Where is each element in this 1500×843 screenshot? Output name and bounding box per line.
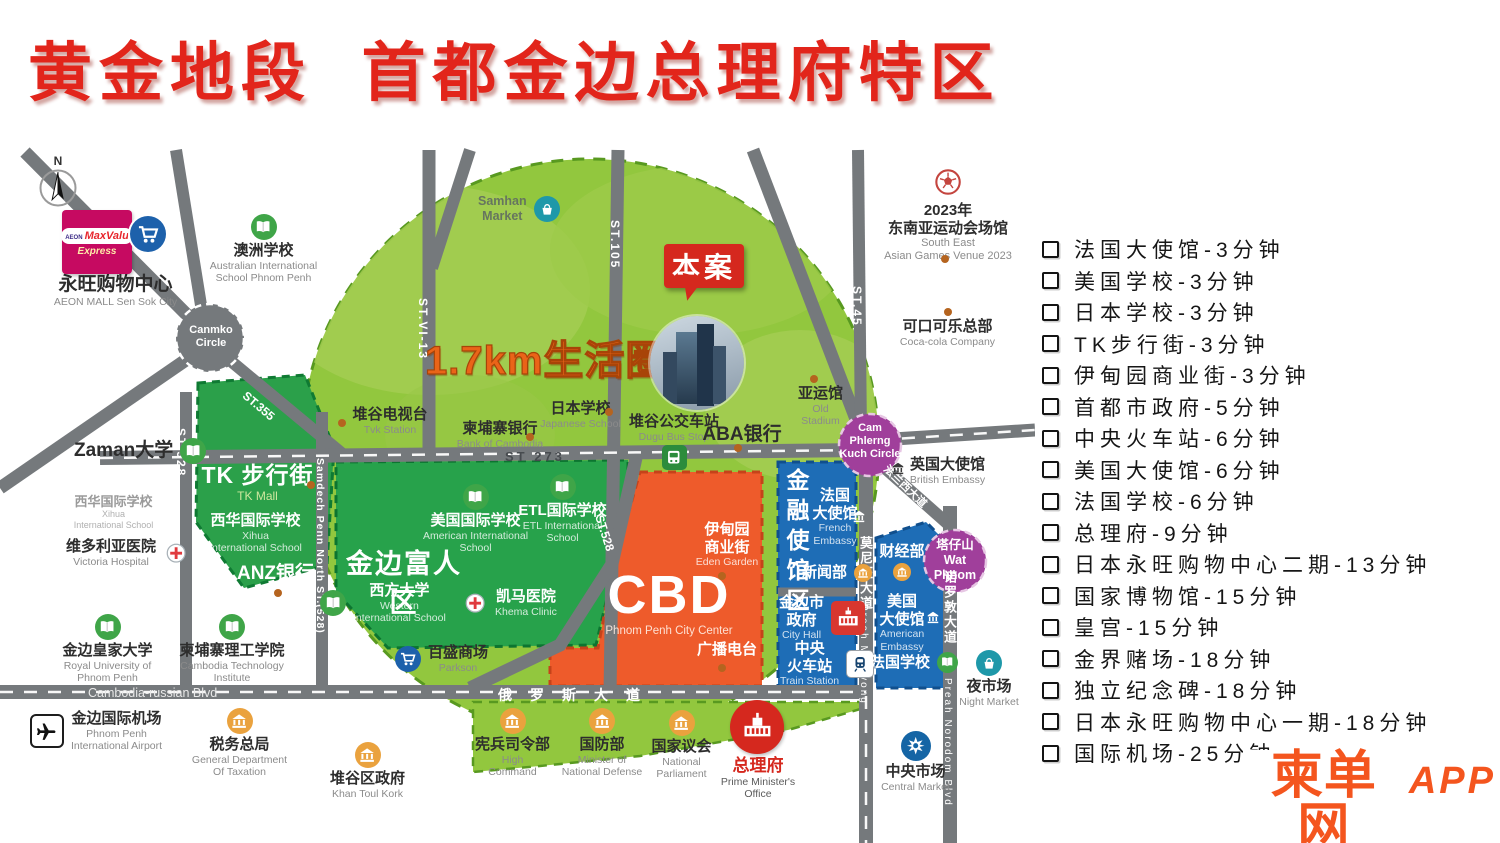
wat-phnom-circle-label: 塔仔山 Wat Phnom bbox=[926, 538, 984, 583]
poi-label-en: Phnom Penh bbox=[77, 672, 138, 684]
poi-etl-school: ETL国际学校ETL InternationalSchool bbox=[500, 472, 625, 544]
poi-label-zh: 宪兵司令部 bbox=[475, 736, 550, 754]
poi-label-en: AEON MALL Sen Sok City bbox=[54, 296, 177, 308]
poi-label-zh: 法国 bbox=[820, 487, 850, 505]
checkbox-icon bbox=[1042, 493, 1059, 510]
poi-label-en: Phnom Penh bbox=[86, 728, 147, 740]
cross-icon bbox=[462, 590, 488, 616]
poi-coca-cola-company: 可口可乐总部Coca-cola Company bbox=[880, 318, 1015, 348]
poi-marker-dot bbox=[944, 308, 952, 316]
poi-label-zh: 美国 bbox=[887, 593, 917, 611]
brand-app-suffix: APP bbox=[1409, 760, 1496, 803]
road-label-st45: ST.45 bbox=[850, 286, 864, 327]
poi-royal-university: 金边皇家大学Royal University ofPhnom Penh bbox=[50, 612, 165, 684]
checkbox-icon bbox=[1042, 461, 1059, 478]
poi-text: 中央火车站Train Station bbox=[780, 640, 839, 688]
aeon-brand-top: AEON bbox=[65, 235, 82, 241]
poi-text: 伊甸园商业街Eden Garden bbox=[696, 521, 758, 569]
poi-label-zh: 永旺购物中心 bbox=[58, 274, 172, 296]
poi-text: 广播电台 bbox=[697, 641, 757, 659]
cross-icon bbox=[163, 540, 189, 566]
poi-marker-dot bbox=[734, 444, 742, 452]
distance-list-item: 美国大使馆-6分钟 bbox=[1042, 459, 1431, 481]
poi-text: 法国学校 bbox=[870, 654, 930, 672]
distance-text: 美国大使馆-6分钟 bbox=[1074, 455, 1285, 485]
poi-label-zh: Zaman大学 bbox=[74, 440, 173, 462]
poi-text: 维多利亚医院Victoria Hospital bbox=[66, 538, 156, 568]
poi-high-command: 宪兵司令部HighCommand bbox=[465, 706, 560, 778]
poi-label-en: Victoria Hospital bbox=[73, 556, 149, 568]
poi-text: 国防部Minister ofNational Defense bbox=[562, 736, 643, 778]
poi-taxation-department: 税务总局General DepartmentOf Taxation bbox=[172, 706, 307, 778]
poi-text: 税务总局General DepartmentOf Taxation bbox=[192, 736, 287, 778]
distance-text: 日本学校-3分钟 bbox=[1074, 297, 1259, 327]
poi-label-zh: 法国学校 bbox=[870, 654, 930, 672]
distance-list-item: 日本学校-3分钟 bbox=[1042, 301, 1431, 323]
bank-icon bbox=[893, 563, 911, 581]
aeon-brand-sub: Express bbox=[78, 246, 117, 257]
checkbox-icon bbox=[1042, 650, 1059, 667]
distance-list-item: 皇宫-15分钟 bbox=[1042, 616, 1431, 638]
poi-marker-dot bbox=[605, 408, 613, 416]
aeon-brand-main: MaxValu bbox=[85, 230, 129, 242]
poi-text: SamhanMarket bbox=[478, 194, 527, 224]
poi-label-zh: 柬埔寨理工学院 bbox=[179, 642, 284, 660]
poi-label-en: Eden Garden bbox=[696, 556, 758, 568]
bank-icon bbox=[355, 742, 381, 768]
poi-label-zh: 东南亚运动会场馆 bbox=[888, 220, 1008, 238]
poi-label-en: Stadium bbox=[801, 415, 840, 427]
poi-label-zh: 维多利亚医院 bbox=[66, 538, 156, 556]
poi-label-zh: 夜市场 bbox=[966, 678, 1011, 696]
soccer-icon bbox=[930, 164, 966, 200]
poi-label-zh: 堆谷电视台 bbox=[352, 406, 427, 424]
poi-sea-games-venue: 2023年东南亚运动会场馆South EastAsian Games Venue… bbox=[862, 162, 1034, 263]
distance-list-item: 中央火车站-6分钟 bbox=[1042, 427, 1431, 449]
poi-victoria-hospital: 维多利亚医院Victoria Hospital bbox=[66, 538, 191, 568]
distance-list-item: 总理府-9分钟 bbox=[1042, 522, 1431, 544]
poi-xihua-school: 西华国际学校XihuaInternational School bbox=[56, 494, 171, 531]
poi-label-en: Xihua bbox=[242, 530, 269, 542]
page-title: 黄金地段 首都金边总理府特区 bbox=[28, 22, 1001, 114]
poi-marker-dot bbox=[274, 589, 282, 597]
poi-label-en: National bbox=[662, 756, 701, 768]
checkbox-icon bbox=[1042, 745, 1059, 762]
basket-icon bbox=[534, 196, 560, 222]
distance-text: 总理府-9分钟 bbox=[1074, 518, 1233, 548]
burst-icon bbox=[901, 731, 931, 761]
poi-label-en: Samhan bbox=[478, 194, 527, 209]
poi-aeon-mall: 永旺购物中心AEON MALL Sen Sok City bbox=[48, 274, 183, 309]
checkbox-icon bbox=[1042, 241, 1059, 258]
road-label-st273: ST 273 bbox=[505, 449, 565, 464]
poi-label-en: International School bbox=[209, 542, 302, 554]
poi-tvk-station: 堆谷电视台Tvk Station bbox=[340, 406, 440, 436]
compass-n-label: N bbox=[54, 154, 63, 168]
poi-british-embassy: 英国大使馆British Embassy bbox=[905, 456, 990, 486]
distance-text: 法国大使馆-3分钟 bbox=[1074, 234, 1285, 264]
poi-ministry-of-information: 新闻部 bbox=[802, 562, 874, 584]
poi-label-zh: 凯马医院 bbox=[496, 588, 556, 606]
poi-label-zh: ANZ银行 bbox=[237, 563, 314, 585]
distance-list-item: 日本永旺购物中心一期-18分钟 bbox=[1042, 711, 1431, 733]
poi-label-zh: 总理府 bbox=[732, 756, 783, 776]
book-icon bbox=[95, 614, 121, 640]
poi-label-zh: ABA银行 bbox=[702, 424, 781, 446]
poi-text: 总理府Prime Minister'sOffice bbox=[721, 756, 795, 801]
poi-label-en: Tvk Station bbox=[364, 424, 417, 436]
poi-text: 西方大学WesternInternational School bbox=[353, 582, 446, 624]
poi-australian-school: 澳洲学校Australian InternationalSchool Phnom… bbox=[196, 212, 331, 284]
poi-label-en: Coca-cola Company bbox=[900, 336, 995, 348]
bank-icon bbox=[227, 708, 253, 734]
checkbox-icon bbox=[1042, 335, 1059, 352]
poi-label-en: Dugu Bus Stop bbox=[639, 431, 710, 443]
distance-list-item: 法国学校-6分钟 bbox=[1042, 490, 1431, 512]
poi-text: 柬埔寨理工学院Cambodia TechnologyInstitute bbox=[179, 642, 284, 684]
poi-label-zh: 税务总局 bbox=[209, 736, 269, 754]
distance-list-item: 首都市政府-5分钟 bbox=[1042, 396, 1431, 418]
poi-samhan-market: SamhanMarket bbox=[478, 194, 562, 224]
distance-text: 日本永旺购物中心二期-13分钟 bbox=[1074, 549, 1431, 579]
poi-label-en: ETL International bbox=[523, 520, 603, 532]
jiandanwang-logo[interactable]: 柬单网 APP 在柬华人都在用 bbox=[1243, 750, 1500, 843]
distance-text: 国家博物馆-15分钟 bbox=[1074, 581, 1301, 611]
poi-marker-dot bbox=[810, 375, 818, 383]
poi-text: Zaman大学 bbox=[74, 440, 173, 462]
poi-label-zh: 政府 bbox=[787, 612, 817, 630]
poi-text: 金边国际机场Phnom PenhInternational Airport bbox=[71, 710, 162, 752]
poi-text: 凯马医院Khema Clinic bbox=[495, 588, 557, 618]
poi-label-en: Of Taxation bbox=[213, 766, 266, 778]
poi-french-school: 法国学校 bbox=[870, 650, 960, 675]
wat-phnom-en: Wat Phnom bbox=[926, 553, 984, 583]
distance-text: 金界赌场-18分钟 bbox=[1074, 644, 1275, 674]
embassy-icon bbox=[926, 610, 940, 624]
poi-label-zh: 日本学校 bbox=[550, 400, 610, 418]
poi-label-en: Night Market bbox=[959, 696, 1019, 708]
cam-phlerng-circle-label: Cam Phlerng Kuch Circle bbox=[838, 422, 902, 462]
poi-label-en: Market bbox=[482, 209, 522, 224]
distance-text: 法国学校-6分钟 bbox=[1074, 486, 1259, 516]
poi-label-en: General Department bbox=[192, 754, 287, 766]
poi-label-zh: 火车站 bbox=[787, 658, 832, 676]
poi-label-zh: 大使馆 bbox=[812, 505, 857, 523]
distance-list-item: 伊甸园商业街-3分钟 bbox=[1042, 364, 1431, 386]
poi-label-zh: 广播电台 bbox=[697, 641, 757, 659]
poi-label-en: International Airport bbox=[71, 740, 162, 752]
poi-anz-bank: ANZ银行 bbox=[228, 563, 323, 585]
book-icon bbox=[463, 484, 489, 510]
road-label-st105: ST.105 bbox=[608, 220, 622, 269]
poi-text: 堆谷电视台Tvk Station bbox=[352, 406, 427, 436]
poi-label-en: National Defense bbox=[562, 766, 643, 778]
project-location-badge[interactable]: 本案 bbox=[664, 244, 744, 288]
poi-label-en: Royal University of bbox=[64, 660, 152, 672]
book-icon bbox=[550, 474, 576, 500]
checkbox-icon bbox=[1042, 272, 1059, 289]
distance-list-item: TK步行街-3分钟 bbox=[1042, 333, 1431, 355]
cbd-subtitle: Phnom Penh City Center bbox=[598, 625, 740, 637]
poi-text: 百盛商场Parkson bbox=[428, 644, 488, 674]
checkbox-icon bbox=[1042, 398, 1059, 415]
poi-radio-station: 广播电台 bbox=[682, 641, 772, 659]
distance-text: 中央火车站-6分钟 bbox=[1074, 423, 1285, 453]
poi-text: 可口可乐总部Coca-cola Company bbox=[900, 318, 995, 348]
distance-list: 法国大使馆-3分钟美国学校-3分钟日本学校-3分钟TK步行街-3分钟伊甸园商业街… bbox=[1042, 238, 1431, 764]
poi-text: ABA银行 bbox=[702, 424, 781, 446]
poi-text: 堆谷区政府Khan Toul Kork bbox=[330, 770, 405, 800]
poi-label-en: Central Market bbox=[881, 781, 950, 793]
govred-icon bbox=[831, 601, 865, 635]
poi-label-zh: 国防部 bbox=[579, 736, 624, 754]
distance-text: 独立纪念碑-18分钟 bbox=[1074, 675, 1301, 705]
poi-text: ETL国际学校ETL InternationalSchool bbox=[518, 502, 606, 544]
maxvalu-card: AEON MaxValu Express bbox=[62, 210, 132, 274]
poi-parkson-mall: 百盛商场Parkson bbox=[393, 644, 488, 674]
distance-text: 日本永旺购物中心一期-18分钟 bbox=[1074, 707, 1431, 737]
poi-text: 澳洲学校Australian InternationalSchool Phnom… bbox=[210, 242, 317, 284]
poi-label-zh: 西方大学 bbox=[369, 582, 429, 600]
poi-label-zh: 西华国际学校 bbox=[74, 494, 152, 509]
poi-label-zh: 国家议会 bbox=[651, 738, 711, 756]
poi-western-university: 西方大学WesternInternational School bbox=[318, 582, 446, 624]
poi-text: 法国大使馆FrenchEmbassy bbox=[812, 487, 857, 547]
distance-text: 皇宫-15分钟 bbox=[1074, 612, 1223, 642]
poi-zaman-university: Zaman大学 bbox=[74, 436, 208, 466]
poi-marker-dot bbox=[526, 433, 534, 441]
poi-label-zh: 中央市场 bbox=[885, 763, 945, 781]
poi-label-en: Khema Clinic bbox=[495, 606, 557, 618]
book-icon bbox=[251, 214, 277, 240]
poi-label-zh: 亚运馆 bbox=[798, 385, 843, 403]
poi-text: 国家议会NationalParliament bbox=[651, 738, 711, 780]
poi-label-en: Khan Toul Kork bbox=[332, 788, 403, 800]
poi-text: 金边皇家大学Royal University ofPhnom Penh bbox=[62, 642, 152, 684]
plane-icon bbox=[30, 714, 64, 748]
checkbox-icon bbox=[1042, 524, 1059, 541]
poi-text: TK 步行街TK Mall bbox=[201, 462, 313, 503]
poi-khan-toul-kork: 堆谷区政府Khan Toul Kork bbox=[305, 740, 430, 800]
canmko-circle-label: Canmko Circle bbox=[180, 324, 242, 350]
road-label-cambodia-russian: Cambodia-russian Blvd bbox=[88, 686, 217, 700]
poi-label-en: TK Mall bbox=[237, 489, 278, 503]
poi-tk-mall: TK 步行街TK Mall bbox=[200, 462, 315, 503]
distance-list-item: 日本永旺购物中心二期-13分钟 bbox=[1042, 553, 1431, 575]
poi-label-zh: 堆谷区政府 bbox=[330, 770, 405, 788]
poi-text: 中央市场Central Market bbox=[881, 763, 950, 793]
poi-label-zh: ETL国际学校 bbox=[518, 502, 606, 520]
embassy-icon bbox=[891, 461, 905, 475]
poi-label-zh: 2023年 bbox=[924, 202, 972, 220]
poi-label-en: International School bbox=[74, 520, 154, 531]
shopping-cart-icon bbox=[130, 216, 166, 252]
brand-name: 柬单网 bbox=[1247, 750, 1401, 843]
poi-city-hall: 金边市政府City Hall bbox=[779, 594, 867, 642]
poi-night-market: 夜市场Night Market bbox=[954, 648, 1024, 708]
checkbox-icon bbox=[1042, 556, 1059, 573]
poi-label-zh: 英国大使馆 bbox=[910, 456, 985, 474]
bank-icon bbox=[669, 710, 695, 736]
distance-text: 伊甸园商业街-3分钟 bbox=[1074, 360, 1311, 390]
embassy-icon bbox=[852, 509, 866, 523]
poi-label-en: Train Station bbox=[780, 675, 839, 687]
poi-label-en: South East bbox=[921, 237, 975, 250]
cart-icon bbox=[395, 646, 421, 672]
checkbox-icon bbox=[1042, 619, 1059, 636]
checkbox-icon bbox=[1042, 682, 1059, 699]
bank-icon bbox=[589, 708, 615, 734]
poi-label-en: High bbox=[502, 754, 524, 766]
poi-label-en: School bbox=[546, 532, 578, 544]
checkbox-icon bbox=[1042, 430, 1059, 447]
distance-list-item: 金界赌场-18分钟 bbox=[1042, 648, 1431, 670]
poi-label-zh: 商业街 bbox=[704, 539, 749, 557]
poi-international-airport: 金边国际机场Phnom PenhInternational Airport bbox=[28, 710, 162, 752]
poi-marker-dot bbox=[307, 481, 315, 489]
life-circle-label: 1.7km生活圈 bbox=[425, 328, 666, 386]
poi-label-en: British Embassy bbox=[910, 474, 985, 486]
poi-label-en: Xihua bbox=[102, 509, 125, 520]
poi-prime-minister-office: 总理府Prime Minister'sOffice bbox=[712, 756, 804, 801]
poi-text: 永旺购物中心AEON MALL Sen Sok City bbox=[54, 274, 177, 309]
distance-text: TK步行街-3分钟 bbox=[1074, 329, 1270, 359]
advert-map-page: 黄金地段 首都金边总理府特区 bbox=[0, 0, 1500, 843]
book-icon bbox=[320, 590, 346, 616]
poi-label-zh: 可口可乐总部 bbox=[902, 318, 992, 336]
poi-marker-dot bbox=[941, 255, 949, 263]
distance-text: 美国学校-3分钟 bbox=[1074, 266, 1259, 296]
poi-label-en: Embassy bbox=[813, 535, 856, 547]
poi-label-zh: 金边皇家大学 bbox=[62, 642, 152, 660]
poi-marker-dot bbox=[718, 572, 726, 580]
poi-text: 金边市政府City Hall bbox=[779, 594, 824, 642]
poi-label-en: Japanese School bbox=[540, 418, 621, 430]
poi-label-zh: 中央 bbox=[795, 640, 825, 658]
poi-label-zh: 金边市 bbox=[779, 594, 824, 612]
poi-label-zh: 西华国际学校 bbox=[210, 512, 300, 530]
poi-aba-bank: ABA银行 bbox=[702, 424, 782, 446]
wat-phnom-zh: 塔仔山 bbox=[926, 538, 984, 553]
poi-label-zh: 百盛商场 bbox=[428, 644, 488, 662]
poi-label-en: Institute bbox=[214, 672, 251, 684]
poi-cambodia-technology-institute: 柬埔寨理工学院Cambodia TechnologyInstitute bbox=[162, 612, 302, 684]
poi-text: 财经部 bbox=[879, 543, 924, 561]
poi-label-en: Western bbox=[380, 600, 419, 612]
poi-label-en: Cambodia Technology bbox=[180, 660, 284, 672]
distance-list-item: 国家博物馆-15分钟 bbox=[1042, 585, 1431, 607]
poi-train-station: 中央火车站Train Station bbox=[780, 640, 876, 688]
poi-text: 美国大使馆AmericanEmbassy bbox=[879, 593, 924, 653]
poi-ministry-of-finance: 财经部 bbox=[870, 543, 934, 583]
poi-text: 西华国际学校XihuaInternational School bbox=[74, 494, 154, 531]
poi-text: 宪兵司令部HighCommand bbox=[475, 736, 550, 778]
poi-khema-clinic: 凯马医院Khema Clinic bbox=[460, 588, 557, 618]
poi-text: 亚运馆OldStadium bbox=[798, 385, 843, 427]
poi-label-en: Australian International bbox=[210, 260, 317, 272]
distance-list-item: 法国大使馆-3分钟 bbox=[1042, 238, 1431, 260]
poi-label-zh: 大使馆 bbox=[879, 611, 924, 629]
distance-list-item: 独立纪念碑-18分钟 bbox=[1042, 679, 1431, 701]
poi-label-en: Parkson bbox=[439, 662, 478, 674]
poi-text: 2023年东南亚运动会场馆South EastAsian Games Venue… bbox=[884, 202, 1012, 263]
poi-label-zh: 澳洲学校 bbox=[233, 242, 293, 260]
checkbox-icon bbox=[1042, 367, 1059, 384]
bank-icon bbox=[500, 708, 526, 734]
poi-label-zh: 财经部 bbox=[879, 543, 924, 561]
poi-marker-dot bbox=[338, 419, 346, 427]
poi-label-en: Office bbox=[744, 788, 771, 800]
bus-icon bbox=[662, 445, 687, 470]
poi-label-en: Minister of bbox=[578, 754, 626, 766]
poi-label-en: Command bbox=[488, 766, 536, 778]
poi-label-zh: 金边国际机场 bbox=[72, 710, 162, 728]
poi-label-en: Old bbox=[812, 403, 828, 415]
distance-list-item: 美国学校-3分钟 bbox=[1042, 270, 1431, 292]
poi-label-en: School bbox=[459, 542, 491, 554]
poi-central-market: 中央市场Central Market bbox=[868, 729, 963, 793]
checkbox-icon bbox=[1042, 304, 1059, 321]
road-label-russian-zh: 俄罗斯大道 bbox=[498, 685, 658, 705]
poi-label-zh: 新闻部 bbox=[802, 564, 847, 582]
poi-label-en: Parliament bbox=[656, 768, 706, 780]
poi-text: 新闻部 bbox=[802, 564, 847, 582]
poi-eden-garden: 伊甸园商业街Eden Garden bbox=[682, 521, 772, 569]
poi-label-en: American bbox=[880, 628, 924, 640]
poi-text: 西华国际学校XihuaInternational School bbox=[209, 512, 302, 554]
distance-text: 首都市政府-5分钟 bbox=[1074, 392, 1285, 422]
checkbox-icon bbox=[1042, 587, 1059, 604]
poi-marker-dot bbox=[718, 664, 726, 672]
poi-text: 夜市场Night Market bbox=[959, 678, 1019, 708]
poi-text: 英国大使馆British Embassy bbox=[910, 456, 985, 486]
poi-xihua-school-zone: 西华国际学校XihuaInternational School bbox=[198, 512, 313, 554]
book-icon bbox=[180, 438, 206, 464]
prime-minister-office-icon bbox=[730, 700, 784, 754]
book-icon bbox=[219, 614, 245, 640]
poi-label-en: Prime Minister's bbox=[721, 776, 795, 788]
aeon-maxvalu-logo: AEON MaxValu Express bbox=[62, 210, 132, 274]
poi-label-en: International School bbox=[353, 612, 446, 624]
poi-text: ANZ银行 bbox=[237, 563, 314, 585]
project-photo bbox=[650, 316, 744, 410]
poi-label-zh: TK 步行街 bbox=[201, 462, 313, 489]
basket-icon bbox=[976, 650, 1002, 676]
poi-label-zh: 伊甸园 bbox=[704, 521, 749, 539]
poi-label-en: School Phnom Penh bbox=[216, 272, 312, 284]
compass-north-icon: N bbox=[36, 154, 80, 208]
checkbox-icon bbox=[1042, 713, 1059, 730]
poi-label-en: French bbox=[819, 522, 852, 534]
